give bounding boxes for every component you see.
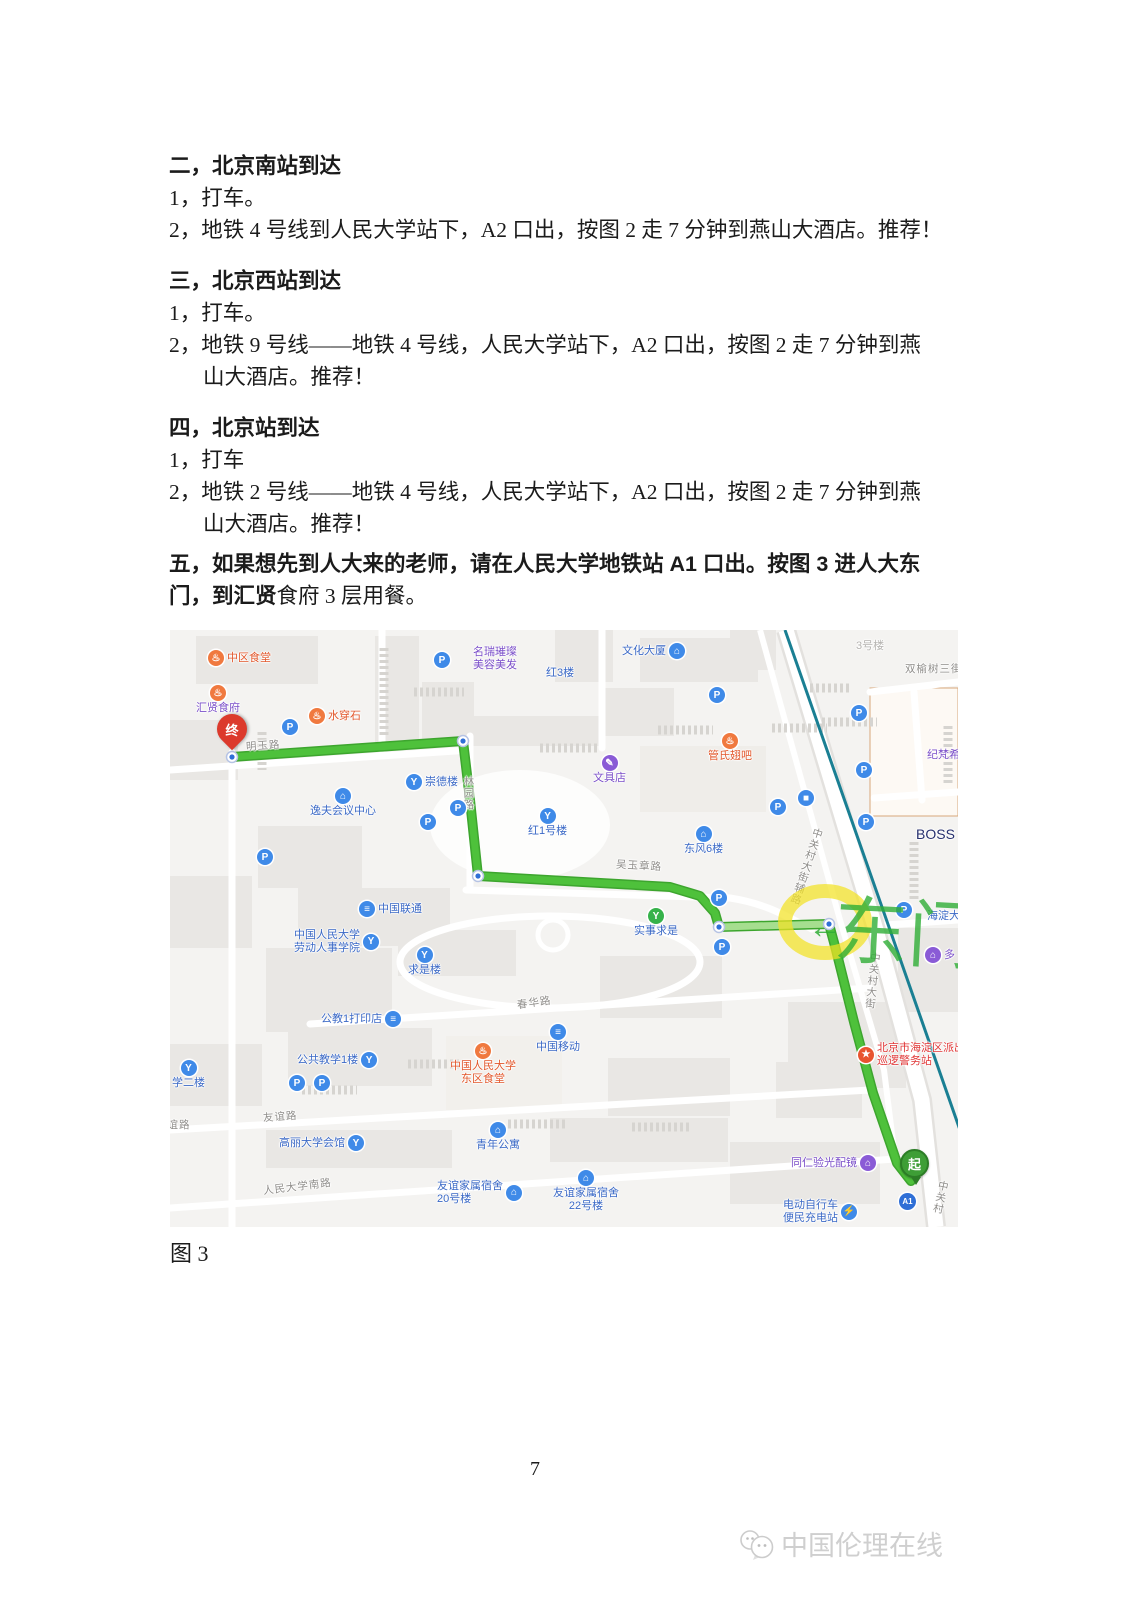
exit-a1-badge: A1	[899, 1193, 916, 1210]
poi-ruc-east-canteen-label: 中国人民大学 东区食堂	[450, 1060, 516, 1086]
doc-line: 山大酒店。推荐！	[169, 508, 966, 540]
poi-youyi-dorm-20-icon: ⌂	[506, 1185, 522, 1201]
poi-huixian-canteen-icon: ♨	[210, 685, 226, 701]
icon-parking-5: P	[257, 849, 273, 865]
start-marker: 起	[900, 1149, 929, 1178]
poi-duo-icon: ⌂	[925, 947, 941, 963]
road-shuangyushu-3rd: 双榆树三街	[905, 663, 958, 675]
doc-text: 二，北京南站到达1，打车。2，地铁 4 号线到人民大学站下，A2 口出，按图 2…	[169, 150, 966, 612]
poi-china-mobile: ≡中国移动	[536, 1024, 580, 1054]
label-haidian-st: 海淀大	[927, 910, 958, 923]
label-boss-label: BOSS	[916, 826, 955, 843]
poi-teaching-2-label: 学二楼	[172, 1077, 205, 1090]
icon-parking-9: P	[314, 1075, 330, 1091]
destination-pin: 终	[211, 708, 253, 750]
poi-zhongqu-canteen: ♨中区食堂	[208, 650, 271, 666]
icon-parking-10-icon: P	[896, 902, 912, 918]
poi-tongren-optical-icon: ⌂	[860, 1155, 876, 1171]
poi-shuichuanshi: ♨水穿石	[309, 708, 361, 724]
icon-parking-6-icon: P	[709, 687, 725, 703]
icon-parking-1-icon: P	[434, 652, 450, 668]
icon-parking-13-icon: P	[858, 814, 874, 830]
poi-wenhua-plaza: 文化大厦⌂	[622, 643, 685, 659]
label-hong-3: 红3楼	[546, 667, 574, 680]
poi-qiushilou: Y求是楼	[408, 947, 441, 977]
road-shuangyushu-3rd-label: 双榆树三街	[905, 663, 958, 675]
poi-police-station-label: 北京市海淀区派出 巡逻警务站	[877, 1042, 958, 1068]
icon-parking-3: P	[450, 800, 466, 816]
poi-mingrui-salon-label: 名瑞璀璨 美容美发	[473, 646, 517, 672]
icon-parking-1: P	[434, 652, 450, 668]
poi-dongfeng6-label: 东风6楼	[684, 843, 723, 856]
poi-zhongqu-canteen-icon: ♨	[208, 650, 224, 666]
poi-youyi-dorm-22-icon: ⌂	[578, 1170, 594, 1186]
icon-parking-9-icon: P	[314, 1075, 330, 1091]
figure-caption: 图 3	[170, 1236, 209, 1268]
label-building-3: 3号楼	[856, 640, 884, 653]
poi-qiushilou-icon: Y	[417, 947, 433, 963]
poi-youth-apartment-icon: ⌂	[490, 1122, 506, 1138]
label-haidian-st-label: 海淀大	[927, 910, 958, 923]
icon-parking-5-icon: P	[257, 849, 273, 865]
page-number: 7	[505, 1458, 565, 1481]
poi-police-station: ★北京市海淀区派出 巡逻警务站	[858, 1042, 958, 1068]
poi-gongjiao1-print-label: 公教1打印店	[321, 1013, 382, 1026]
poi-shishiqiushi: Y实事求是	[634, 908, 678, 938]
icon-parking-13: P	[858, 814, 874, 830]
poi-teaching-2-icon: Y	[181, 1060, 197, 1076]
poi-chongdelou-icon: Y	[406, 774, 422, 790]
icon-parking-12-icon: P	[856, 762, 872, 778]
road-youyi-label: 友谊路	[263, 1110, 298, 1125]
poi-youyi-dorm-20: 友谊家属宿舍 20号楼⌂	[437, 1180, 522, 1206]
wechat-icon	[737, 1525, 775, 1563]
poi-youyi-dorm-22-label: 友谊家属宿舍 22号楼	[553, 1187, 619, 1213]
poi-ruc-east-canteen-icon: ♨	[475, 1043, 491, 1059]
poi-zhongqu-canteen-label: 中区食堂	[227, 652, 271, 665]
icon-parking-2-icon: P	[282, 719, 298, 735]
icon-parking-4-icon: P	[420, 814, 436, 830]
poi-qiushilou-label: 求是楼	[408, 964, 441, 977]
poi-china-mobile-label: 中国移动	[536, 1041, 580, 1054]
icon-parking-8-icon: P	[289, 1075, 305, 1091]
poi-public-teaching-1: 公共教学1楼Y	[297, 1052, 377, 1068]
icon-parking-10: P	[896, 902, 912, 918]
icon-parking-7: P	[770, 799, 786, 815]
doc-line: 1，打车。	[169, 182, 966, 214]
poi-china-unicom-label: 中国联通	[378, 903, 422, 916]
watermark: 中国伦理在线	[737, 1524, 943, 1563]
label-boss: BOSS	[916, 826, 955, 843]
road-mingyu: 明玉路	[246, 739, 281, 754]
poi-china-unicom-icon: ≡	[359, 901, 375, 917]
icon-parking-12: P	[856, 762, 872, 778]
poi-dongfeng6-icon: ⌂	[696, 826, 712, 842]
poi-ruc-labor-school: 中国人民大学 劳动人事学院Y	[294, 929, 379, 955]
poi-ebike-charging-label: 电动自行车 便民充电站	[783, 1199, 838, 1225]
doc-line: 2，地铁 2 号线——地铁 4 号线，人民大学站下，A2 口出，按图 2 走 7…	[169, 476, 966, 508]
poi-youth-apartment: ⌂青年公寓	[476, 1122, 520, 1152]
poi-chongdelou: Y崇德楼	[406, 774, 458, 790]
icon-parking-15-icon: P	[714, 939, 730, 955]
poi-gaoli-hall-icon: Y	[348, 1135, 364, 1151]
poi-duo: ⌂多	[925, 947, 955, 963]
poi-china-unicom: ≡中国联通	[359, 901, 422, 917]
label-givenchy-label: 纪梵希	[927, 749, 958, 762]
poi-youyi-dorm-22: ⌂友谊家属宿舍 22号楼	[553, 1170, 619, 1213]
poi-ruc-labor-school-icon: Y	[363, 934, 379, 950]
icon-parking-11: P	[851, 705, 867, 721]
poi-wenjudian-label: 文具店	[593, 772, 626, 785]
label-hong-3-label: 红3楼	[546, 667, 574, 680]
doc-line: 二，北京南站到达	[169, 150, 966, 182]
icon-parking-4: P	[420, 814, 436, 830]
poi-tongren-optical-label: 同仁验光配镜	[791, 1157, 857, 1170]
poi-shuichuanshi-label: 水穿石	[328, 710, 361, 723]
label-givenchy: 纪梵希	[927, 749, 958, 762]
poi-wenjudian: ✎文具店	[593, 755, 626, 785]
poi-shuichuanshi-icon: ♨	[309, 708, 325, 724]
road-youyi-2: 友谊路	[170, 1119, 191, 1131]
poi-wenhua-plaza-icon: ⌂	[669, 643, 685, 659]
poi-hong1-building-label: 红1号楼	[528, 825, 567, 838]
poi-gaoli-hall-label: 高丽大学会馆	[279, 1137, 345, 1150]
doc-line: 门，到汇贤食府 3 层用餐。	[169, 580, 966, 612]
poi-yifu-center: ⌂逸夫会议中心	[310, 788, 376, 818]
icon-parking-2: P	[282, 719, 298, 735]
poi-shishiqiushi-label: 实事求是	[634, 925, 678, 938]
icon-parking-11-icon: P	[851, 705, 867, 721]
watermark-text: 中国伦理在线	[781, 1524, 943, 1563]
poi-youth-apartment-label: 青年公寓	[476, 1139, 520, 1152]
doc-line: 五，如果想先到人大来的老师，请在人民大学地铁站 A1 口出。按图 3 进人大东	[169, 548, 966, 580]
poi-chongdelou-label: 崇德楼	[425, 776, 458, 789]
icon-bus-stop-icon: ■	[798, 790, 814, 806]
poi-police-station-icon: ★	[858, 1047, 874, 1063]
icon-parking-15: P	[714, 939, 730, 955]
route-light-segment	[719, 924, 829, 927]
doc-line: 1，打车	[169, 444, 966, 476]
icon-bus-stop: ■	[798, 790, 814, 806]
poi-china-mobile-icon: ≡	[550, 1024, 566, 1040]
poi-public-teaching-1-label: 公共教学1楼	[297, 1054, 358, 1067]
poi-gaoli-hall: 高丽大学会馆Y	[279, 1135, 364, 1151]
icon-parking-14: P	[711, 890, 727, 906]
poi-wenjudian-icon: ✎	[602, 755, 618, 771]
poi-public-teaching-1-icon: Y	[361, 1052, 377, 1068]
poi-guanshi-chiba: ♨管氏翅吧	[708, 733, 752, 763]
poi-ruc-labor-school-label: 中国人民大学 劳动人事学院	[294, 929, 360, 955]
poi-huixian-canteen: ♨汇贤食府	[196, 685, 240, 715]
poi-guanshi-chiba-icon: ♨	[722, 733, 738, 749]
poi-ebike-charging-icon: ⚡	[841, 1204, 857, 1220]
poi-wenhua-plaza-label: 文化大厦	[622, 645, 666, 658]
poi-tongren-optical: 同仁验光配镜⌂	[791, 1155, 876, 1171]
doc-line: 山大酒店。推荐！	[169, 361, 966, 393]
road-mingyu-label: 明玉路	[246, 739, 281, 754]
poi-yifu-center-icon: ⌂	[335, 788, 351, 804]
icon-parking-6: P	[709, 687, 725, 703]
poi-hong1-building-icon: Y	[540, 808, 556, 824]
poi-guanshi-chiba-label: 管氏翅吧	[708, 750, 752, 763]
road-youyi: 友谊路	[263, 1110, 298, 1125]
doc-line: 三，北京西站到达	[169, 265, 966, 297]
doc-line: 四，北京站到达	[169, 412, 966, 444]
icon-parking-3-icon: P	[450, 800, 466, 816]
poi-ebike-charging: 电动自行车 便民充电站⚡	[783, 1199, 857, 1225]
figure-map: ♨中区食堂名瑞璀璨 美容美发文化大厦⌂3号楼双榆树三街红3楼♨汇贤食府♨水穿石♨…	[170, 630, 958, 1227]
poi-shishiqiushi-icon: Y	[648, 908, 664, 924]
poi-teaching-2: Y学二楼	[172, 1060, 205, 1090]
poi-yifu-center-label: 逸夫会议中心	[310, 805, 376, 818]
doc-line: 2，地铁 4 号线到人民大学站下，A2 口出，按图 2 走 7 分钟到燕山大酒店…	[169, 214, 966, 246]
poi-duo-label: 多	[944, 949, 955, 962]
poi-youyi-dorm-20-label: 友谊家属宿舍 20号楼	[437, 1180, 503, 1206]
road-wuyuzhang: 吴玉章路	[616, 859, 663, 874]
poi-mingrui-salon: 名瑞璀璨 美容美发	[473, 646, 517, 672]
poi-hong1-building: Y红1号楼	[528, 808, 567, 838]
poi-gongjiao1-print-icon: ≡	[385, 1011, 401, 1027]
poi-gongjiao1-print: 公教1打印店≡	[321, 1011, 401, 1027]
road-wuyuzhang-label: 吴玉章路	[616, 859, 663, 874]
road-youyi-2-label: 友谊路	[170, 1119, 191, 1131]
icon-parking-7-icon: P	[770, 799, 786, 815]
poi-dongfeng6: ⌂东风6楼	[684, 826, 723, 856]
label-building-3-label: 3号楼	[856, 640, 884, 653]
doc-line: 1，打车。	[169, 297, 966, 329]
icon-parking-8: P	[289, 1075, 305, 1091]
icon-parking-14-icon: P	[711, 890, 727, 906]
document-page: 二，北京南站到达1，打车。2，地铁 4 号线到人民大学站下，A2 口出，按图 2…	[0, 0, 1131, 1600]
poi-ruc-east-canteen: ♨中国人民大学 东区食堂	[450, 1043, 516, 1086]
doc-line: 2，地铁 9 号线——地铁 4 号线，人民大学站下，A2 口出，按图 2 走 7…	[169, 329, 966, 361]
